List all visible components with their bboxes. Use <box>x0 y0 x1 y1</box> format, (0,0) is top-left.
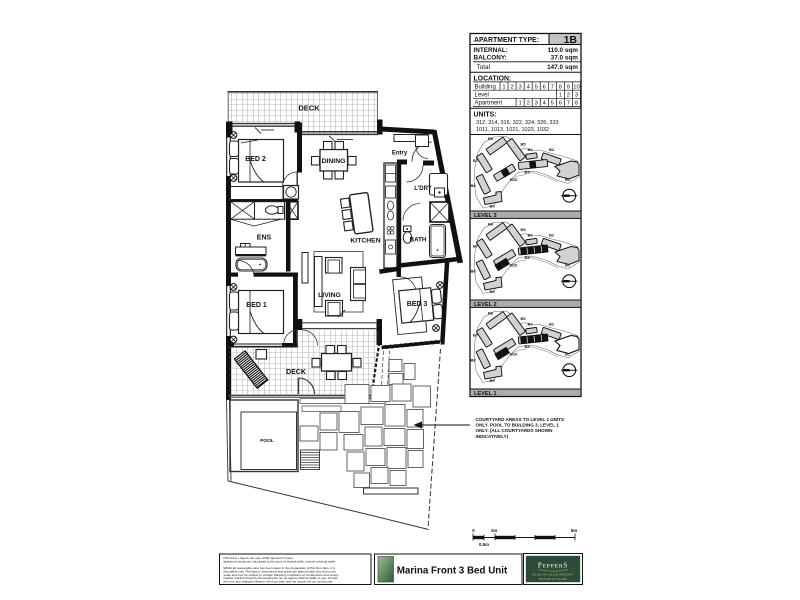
svg-text:UNITS:: UNITS: <box>474 112 497 119</box>
svg-text:7: 7 <box>567 101 570 107</box>
svg-text:BED 1: BED 1 <box>246 302 267 309</box>
svg-text:37.0 sqm: 37.0 sqm <box>551 55 579 62</box>
svg-text:5: 5 <box>551 101 554 107</box>
svg-text:there be any changes between t: there be any changes between this floor … <box>224 580 334 584</box>
svg-text:PEPPERS: PEPPERS <box>538 562 568 570</box>
svg-text:BLUE ON BLUE RESORT: BLUE ON BLUE RESORT <box>533 573 574 577</box>
svg-text:1B: 1B <box>564 34 578 46</box>
svg-text:LEVEL 3: LEVEL 3 <box>474 213 497 219</box>
svg-text:5m: 5m <box>571 528 577 533</box>
svg-text:LOCATION:: LOCATION: <box>474 76 512 83</box>
svg-text:Apartment: Apartment <box>475 101 503 107</box>
svg-text:312, 314, 316, 322, 324, 326,: 312, 314, 316, 322, 324, 326, 333 <box>476 120 559 126</box>
svg-text:1: 1 <box>518 101 521 107</box>
svg-text:BALCONY:: BALCONY: <box>474 55 507 62</box>
svg-text:MAGNETIC ISLAND: MAGNETIC ISLAND <box>539 577 567 581</box>
svg-text:DECK: DECK <box>298 104 320 113</box>
svg-text:Building: Building <box>475 85 496 91</box>
svg-text:L'DRY: L'DRY <box>414 186 432 192</box>
svg-text:ENS: ENS <box>257 235 272 242</box>
svg-text:1m: 1m <box>491 528 497 533</box>
svg-text:apartment areas are calculated: apartment areas are calculated to the po… <box>224 560 336 564</box>
svg-text:BED 2: BED 2 <box>245 156 266 163</box>
svg-text:ONLY. (ALL COURTYARDS SHOWN: ONLY. (ALL COURTYARDS SHOWN <box>476 428 554 433</box>
svg-text:KITCHEN: KITCHEN <box>350 238 380 245</box>
svg-text:DECK: DECK <box>286 369 306 376</box>
svg-text:APARTMENT TYPE:: APARTMENT TYPE: <box>474 37 539 44</box>
svg-text:Level: Level <box>475 93 489 99</box>
svg-text:9: 9 <box>567 84 570 90</box>
svg-text:2: 2 <box>567 93 570 99</box>
svg-text:1011, 1013, 1021, 1023, 1032: 1011, 1013, 1021, 1023, 1032 <box>476 127 549 133</box>
svg-text:2: 2 <box>527 101 530 107</box>
svg-text:6: 6 <box>543 84 546 90</box>
svg-text:110.0 sqm: 110.0 sqm <box>547 47 578 54</box>
svg-text:INDICATIVELY): INDICATIVELY) <box>476 434 509 439</box>
svg-text:ONLY. POOL TO BUILDING 3, LEVE: ONLY. POOL TO BUILDING 3, LEVEL 1 <box>476 423 560 428</box>
svg-text:Entry: Entry <box>392 151 408 157</box>
svg-text:7: 7 <box>551 84 554 90</box>
svg-text:147.0 sqm: 147.0 sqm <box>547 64 578 71</box>
svg-text:DINING: DINING <box>322 158 346 165</box>
svg-text:LIVING: LIVING <box>318 292 341 299</box>
svg-text:6: 6 <box>559 101 562 107</box>
svg-text:3: 3 <box>575 93 578 99</box>
svg-text:BATH: BATH <box>410 237 427 244</box>
svg-text:POOL: POOL <box>260 438 274 444</box>
svg-text:Marina Front 3 Bed Unit: Marina Front 3 Bed Unit <box>397 566 508 577</box>
svg-text:INTERNAL:: INTERNAL: <box>474 47 508 54</box>
svg-text:8: 8 <box>559 84 562 90</box>
svg-text:Total: Total <box>477 64 491 71</box>
svg-text:3: 3 <box>535 101 538 107</box>
svg-text:3: 3 <box>518 84 521 90</box>
svg-text:LEVEL 1: LEVEL 1 <box>474 391 497 397</box>
svg-text:1: 1 <box>502 84 505 90</box>
svg-text:0.5m: 0.5m <box>479 542 489 547</box>
svg-text:LEVEL 2: LEVEL 2 <box>474 302 497 308</box>
svg-text:BED 3: BED 3 <box>407 301 428 308</box>
svg-text:COURTYARD AREAS TO LEVEL 1 UNI: COURTYARD AREAS TO LEVEL 1 UNITS <box>476 417 565 422</box>
svg-text:10: 10 <box>573 84 579 90</box>
svg-text:8: 8 <box>575 101 578 107</box>
svg-text:2: 2 <box>510 84 513 90</box>
svg-text:1: 1 <box>559 93 562 99</box>
svg-text:5: 5 <box>535 84 538 90</box>
